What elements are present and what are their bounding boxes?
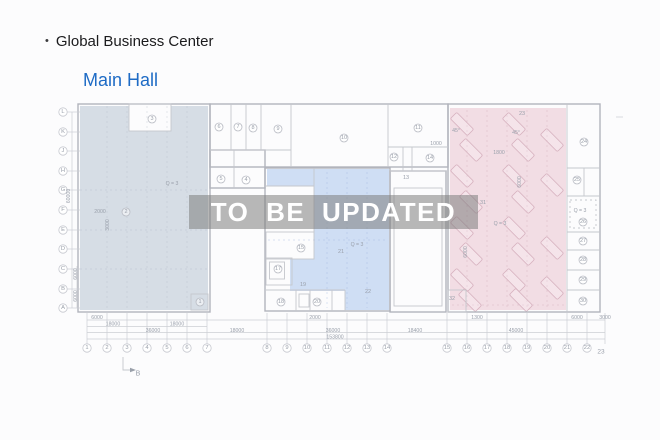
label-text: 20: [544, 345, 550, 351]
label-text: 22: [584, 345, 590, 351]
label-text: 6000: [91, 315, 103, 321]
label-text: 45°: [452, 128, 460, 134]
label-text: 11: [415, 125, 421, 131]
label-text: 21: [564, 345, 570, 351]
label-text: 21: [338, 249, 344, 255]
label-text: 6: [185, 345, 188, 351]
label-text: 7: [205, 345, 208, 351]
label-text: 6000: [517, 176, 523, 188]
label-text: 45°: [512, 130, 520, 136]
label-text: 2: [124, 209, 127, 215]
label-text: 18400: [408, 328, 423, 334]
label-text: 6: [217, 124, 220, 130]
label-text: 18: [278, 299, 284, 305]
label-text: 5: [165, 345, 168, 351]
label-text: 18: [504, 345, 510, 351]
label-text: 3: [150, 116, 153, 122]
label-text: E: [61, 227, 65, 233]
label-text: 1: [198, 299, 201, 305]
label-text: 15: [444, 345, 450, 351]
label-text: 6000: [463, 246, 469, 258]
label-text: 27: [580, 238, 586, 244]
label-text: Q = 3: [574, 208, 587, 214]
label-text: 13: [364, 345, 370, 351]
label-text: Q = 3: [166, 181, 179, 187]
label-text: 28: [580, 257, 586, 263]
label-text: 15: [298, 245, 304, 251]
label-text: 19: [300, 282, 306, 288]
section-marker: B: [136, 371, 141, 378]
label-text: B: [136, 371, 141, 378]
label-text: A: [61, 305, 65, 311]
label-text: D: [61, 246, 65, 252]
label-text: 3000: [105, 219, 111, 231]
label-text: 10: [304, 345, 310, 351]
label-text: 19: [524, 345, 530, 351]
page: • Global Business Center Main Hall: [0, 0, 660, 440]
label-text: C: [61, 266, 65, 272]
label-text: 31: [480, 200, 486, 206]
label-text: 30: [580, 298, 586, 304]
label-text: 1: [85, 345, 88, 351]
label-text: 2: [105, 345, 108, 351]
label-text: 36000: [146, 328, 161, 334]
label-text: 29: [580, 277, 586, 283]
label-text: 26: [580, 219, 586, 225]
label-text: J: [62, 148, 65, 154]
label-text: 9: [276, 126, 279, 132]
label-text: 2000: [309, 315, 321, 321]
label-text: 8: [265, 345, 268, 351]
label-text: 9: [285, 345, 288, 351]
label-text: 3: [125, 345, 128, 351]
label-text: 23: [597, 349, 605, 356]
label-text: 22: [365, 289, 371, 295]
label-text: 14: [384, 345, 391, 351]
label-text: 25: [574, 177, 580, 183]
label-text: 23: [519, 111, 525, 117]
label-text: 12: [344, 345, 350, 351]
watermark-overlay: TO BE UPDATED: [189, 195, 478, 229]
grid-rows: LKJHGFEDCBA: [59, 108, 67, 312]
label-text: 7: [236, 124, 239, 130]
label-text: B: [61, 286, 65, 292]
label-text: 20: [314, 299, 320, 305]
label-text: 4: [244, 177, 247, 183]
label-text: 32: [449, 296, 455, 302]
label-text: 3000: [599, 315, 611, 321]
label-text: 16: [464, 345, 470, 351]
grid-cols: 1234567891011121314151617181920212223: [83, 344, 605, 356]
label-text: 60000: [66, 189, 72, 204]
section-b-marker: [123, 357, 136, 372]
label-text: 153800: [326, 335, 343, 341]
label-text: 6000: [73, 290, 79, 302]
label-text: 18000: [106, 322, 121, 328]
label-text: K: [61, 129, 65, 135]
label-text: 13: [403, 175, 409, 181]
label-text: 17: [484, 345, 490, 351]
label-text: Q = 3: [494, 221, 507, 227]
label-text: 5: [219, 176, 222, 182]
label-text: 18000: [170, 322, 185, 328]
label-text: 45000: [509, 328, 524, 334]
label-text: 10: [341, 135, 347, 141]
label-text: 1800: [493, 150, 505, 156]
label-text: 6000: [73, 268, 79, 280]
label-text: 8: [251, 125, 254, 131]
label-text: 6000: [571, 315, 583, 321]
label-text: 14: [427, 155, 433, 161]
label-text: 24: [581, 139, 587, 145]
label-text: Q = 3: [351, 242, 364, 248]
label-text: 17: [275, 266, 281, 272]
label-text: 1000: [430, 141, 442, 147]
label-text: 1300: [471, 315, 483, 321]
label-text: 18000: [230, 328, 245, 334]
label-text: 36000: [326, 328, 341, 334]
label-text: H: [61, 168, 65, 174]
label-text: F: [61, 207, 65, 213]
label-text: 12: [391, 154, 397, 160]
label-text: G: [61, 187, 66, 193]
label-text: 2000: [94, 209, 106, 215]
label-text: 11: [324, 345, 330, 351]
